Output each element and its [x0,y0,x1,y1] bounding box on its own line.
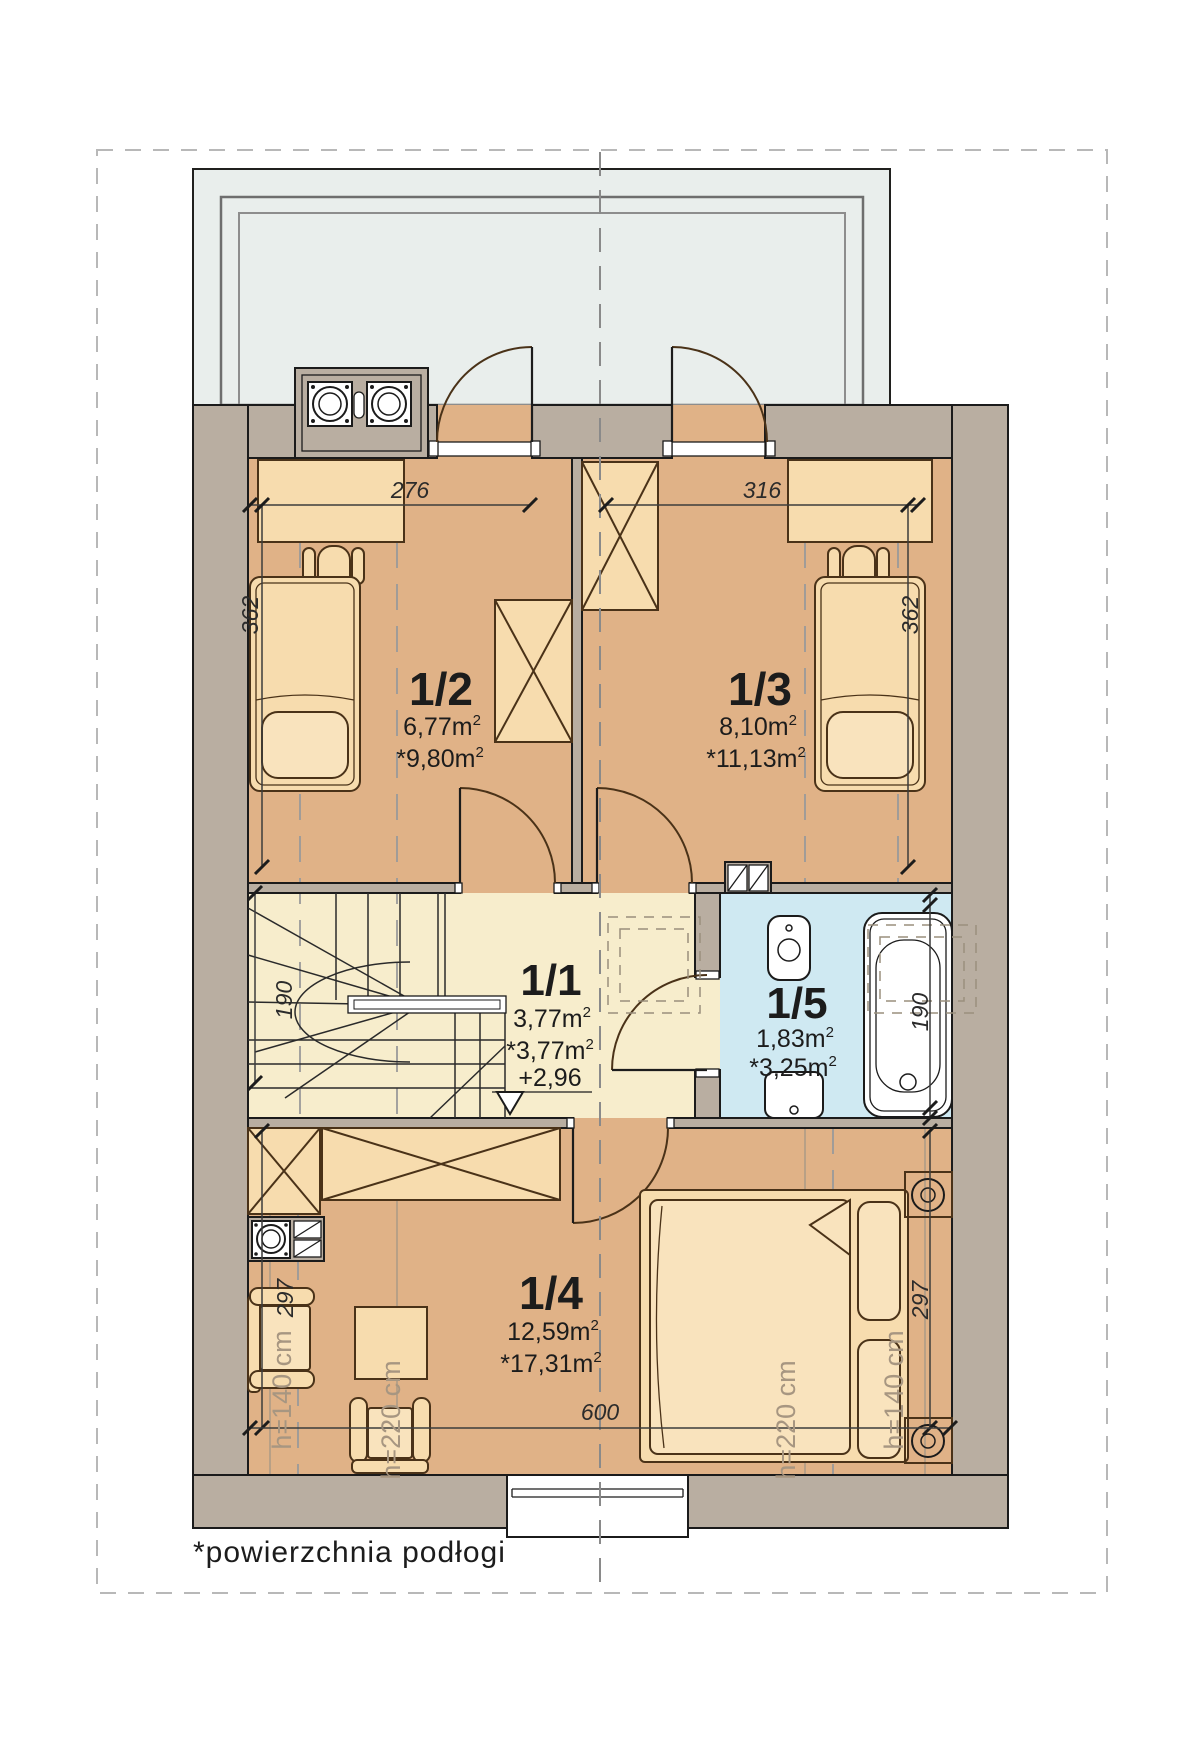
wardrobe-small-room14 [248,1128,320,1214]
dim-600: 600 [581,1399,620,1425]
bottom-wall-left [193,1475,507,1528]
room13-area-star: *11,13m2 [706,744,806,773]
room12-area: 6,77m2 [403,712,481,741]
bed-pillow [262,712,348,778]
bed-pillow [827,712,913,778]
bedroom-partition-wall [572,458,582,883]
floor-plan-drawing: 276 316 362 362 190 190 297 297 600 1/2 … [0,0,1200,1761]
room14-area-star: *17,31m2 [500,1349,601,1378]
chimney-terrace [295,368,428,458]
room11-area: 3,77m2 [513,1004,591,1033]
hall-bath-wall-upper [695,893,720,977]
room13-area: 8,10m2 [719,712,797,741]
hall-bottom-wall-a [248,1118,573,1128]
top-wall-pier [532,405,672,458]
bedroom12-door-opening [460,883,555,893]
dim-297-right: 297 [907,1280,933,1321]
floor-plan-page: 276 316 362 362 190 190 297 297 600 1/2 … [0,0,1200,1761]
terrace-threshold-right [672,442,765,456]
wardrobe-room13 [582,462,658,610]
footer-note: *powierzchnia podłogi [193,1536,506,1569]
hall-bottom-wall-b [668,1118,952,1128]
desk-room12 [258,460,404,542]
room13-id: 1/3 [728,663,792,715]
bottom-window [507,1475,688,1537]
left-wall [193,405,248,1528]
pillow-top [858,1202,900,1320]
bottom-wall-right [688,1475,1008,1528]
wardrobe-big-room14 [322,1128,560,1200]
room14-door-opening [573,1118,668,1128]
room14-area: 12,59m2 [507,1317,599,1346]
room15-area-star: *3,25m2 [749,1053,837,1082]
dim-190-stairs: 190 [271,981,297,1020]
room12-area-star: *9,80m2 [396,744,484,773]
room11-id: 1/1 [520,956,581,1005]
bathroom-door-opening [695,977,720,1070]
bedroom13-door-opening [597,883,690,893]
right-wall [952,405,1008,1528]
room15-area: 1,83m2 [756,1024,834,1053]
wardrobe-room12 [495,600,572,742]
room12-id: 1/2 [409,663,473,715]
bed-room12 [250,577,360,791]
dim-297-left: 297 [272,1278,298,1319]
stair-handrail-bar [348,996,506,1013]
dim-362-right: 362 [897,596,923,635]
dim-362-left: 362 [237,596,263,635]
height-140-left: h=140 cm [267,1330,297,1449]
height-220-right: h=220 cm [771,1360,801,1479]
chimney-room14 [248,1217,324,1261]
dim-316: 316 [743,477,782,503]
dim-276: 276 [390,477,430,503]
mid-wall-a [248,883,460,893]
room14-id: 1/4 [519,1267,583,1319]
height-140-right: h=140 cm [879,1330,909,1449]
level-value: +2,96 [518,1064,581,1092]
room11-area-star: *3,77m2 [506,1036,594,1065]
dim-190-bathtub: 190 [907,993,933,1032]
washbasin [768,916,810,980]
flue-left [308,382,352,426]
terrace-threshold-left [437,442,532,456]
room15-id: 1/5 [766,979,827,1028]
flue-slot [354,392,364,418]
vent-block-bathroom [725,862,771,893]
flue-right [367,382,411,426]
height-220-left: h=220 cm [376,1360,406,1479]
